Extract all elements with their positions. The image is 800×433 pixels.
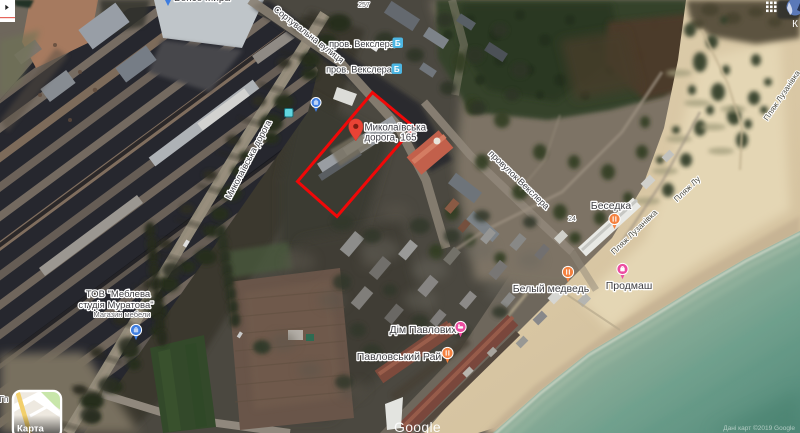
svg-text:ТОВ "Меблева: ТОВ "Меблева	[86, 289, 151, 300]
svg-text:Беседка: Беседка	[591, 200, 632, 212]
svg-text:Дані карт ©2019 Google: Дані карт ©2019 Google	[723, 424, 795, 432]
svg-text:пров. Векслера: пров. Векслера	[329, 39, 396, 49]
svg-text:Карта: Карта	[17, 424, 45, 433]
svg-text:257: 257	[358, 2, 370, 9]
svg-text:Дім Павлових: Дім Павлових	[389, 324, 457, 336]
svg-text:Продмаш: Продмаш	[606, 280, 653, 292]
svg-text:пров. Векслера: пров. Векслера	[326, 65, 393, 75]
svg-text:Вепсе Мира: Вепсе Мира	[174, 0, 230, 4]
svg-text:Б: Б	[395, 39, 401, 48]
svg-text:Павловський Рай: Павловський Рай	[357, 351, 442, 363]
svg-text:дорога, 165: дорога, 165	[365, 132, 417, 143]
svg-text:Б: Б	[394, 65, 400, 74]
svg-text:Гп: Гп	[0, 395, 8, 404]
svg-text:Магазин мебели: Магазин мебели	[94, 310, 151, 319]
svg-text:Google: Google	[394, 419, 441, 433]
svg-text:К: К	[792, 19, 798, 30]
svg-text:24: 24	[568, 216, 576, 223]
svg-text:Белый медведь: Белый медведь	[513, 283, 590, 295]
